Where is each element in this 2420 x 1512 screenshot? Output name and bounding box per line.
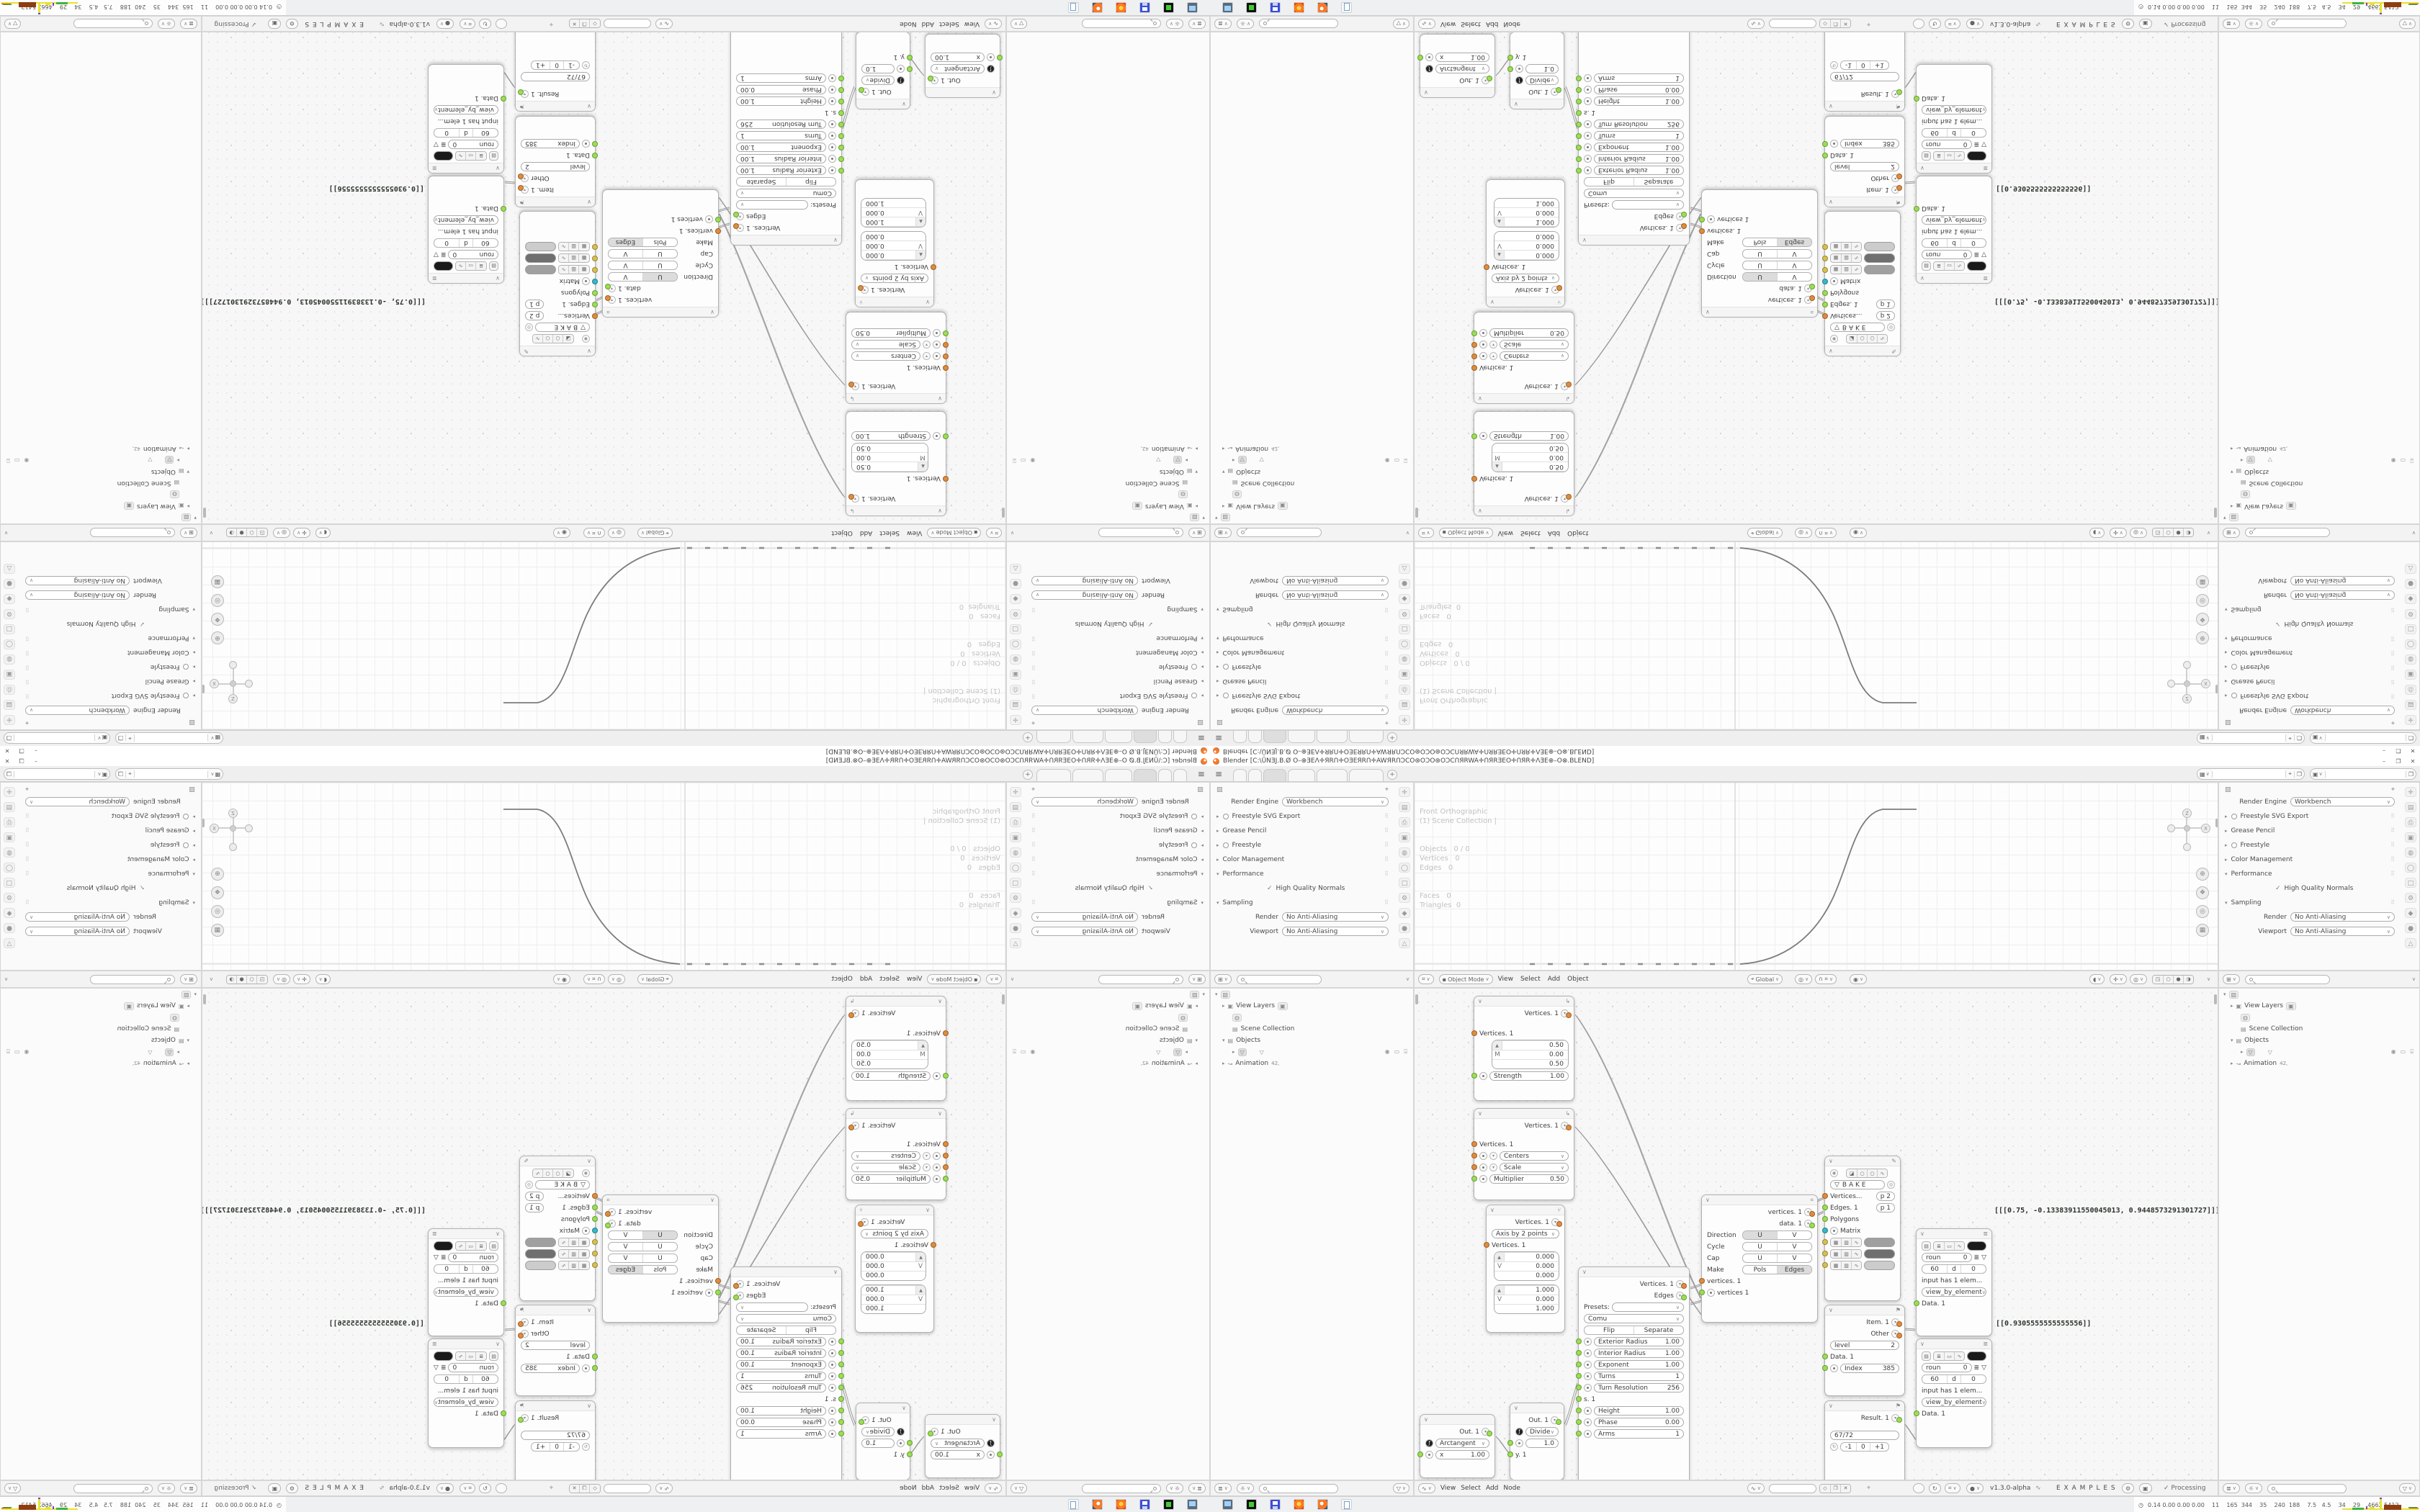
socket-toggle-icon[interactable] [1830, 277, 1838, 285]
direction-u-button[interactable]: U [1743, 1231, 1777, 1239]
collapse-icon[interactable]: ▾ [1216, 871, 1219, 877]
lines-icon[interactable]: ≣ [441, 251, 447, 258]
properties-context-icon[interactable]: ▧ [1216, 786, 1223, 793]
workspace-tab[interactable] [1233, 769, 1247, 781]
bake-tools-button[interactable]: ⚙ [2122, 1483, 2134, 1493]
socket-toggle-icon[interactable] [1479, 341, 1487, 348]
input-socket[interactable] [592, 1228, 598, 1233]
axis-gizmo[interactable]: Z X [2164, 657, 2214, 703]
solid-shading-icon[interactable]: ○ [2163, 976, 2173, 984]
object-menu[interactable]: Object [832, 976, 853, 983]
new-collection-button[interactable]: ☼∨ [1166, 19, 1183, 29]
refresh-button[interactable]: ↻ [479, 1483, 491, 1493]
vector-field[interactable]: ▲0.50 M0.00 0.50 [851, 443, 928, 472]
lines-icon[interactable]: ≣ [1974, 141, 1980, 148]
collapse-icon[interactable]: ▾ [2225, 607, 2228, 613]
window-titlebar[interactable]: Blender [C:\ŪNƎJ.B.Ø O–⊕ƎEΛ✛ЯRՈ✛OƎEЯRՈ✛A… [0, 746, 1210, 756]
scene-collection-item[interactable]: Scene Collection [117, 1025, 171, 1032]
monitor-icon[interactable]: ▤ [1922, 261, 1931, 271]
vcolor-icon[interactable]: ▦ [579, 1238, 589, 1246]
copy-icon[interactable]: ❐ [4, 735, 14, 742]
output-socket[interactable] [518, 174, 524, 179]
taskbar-app-icon-notepad[interactable] [1341, 2, 1352, 13]
output-socket[interactable] [1566, 494, 1572, 500]
tool-tab-icon[interactable]: ✛ [4, 715, 15, 725]
d-toggle[interactable]: d [460, 129, 473, 137]
hqn-checkbox[interactable]: ✓ [1267, 621, 1273, 628]
scene-tab-icon[interactable]: ◍ [1399, 654, 1410, 665]
node-menu[interactable]: Node [900, 20, 917, 27]
outliner-search-input[interactable] [1259, 19, 1338, 29]
region-collapse-handle[interactable] [202, 685, 205, 693]
axis-center-handle[interactable] [230, 825, 236, 832]
d-toggle[interactable]: d [1947, 239, 1960, 247]
hqn-checkbox[interactable]: ✓ [1267, 885, 1273, 892]
collapse-icon[interactable]: ▾ [1201, 900, 1204, 906]
centers-dropdown[interactable]: Centers∨ [851, 351, 920, 361]
collapse-icon[interactable]: ▾ [194, 991, 197, 997]
input-socket[interactable] [1484, 1242, 1489, 1248]
turn-resolution-slider[interactable]: Turn Resolution256 [1594, 120, 1684, 129]
viewport-aa-dropdown[interactable]: No Anti-Aliasing∨ [1282, 927, 1389, 936]
direction-u-button[interactable]: U [643, 273, 677, 281]
copy-icon[interactable]: ❐ [2406, 735, 2416, 742]
value-input[interactable]: 1.0 [1525, 1439, 1559, 1448]
output-socket[interactable] [1896, 1321, 1902, 1327]
socket-toggle-icon[interactable] [705, 1289, 713, 1297]
scale-dropdown[interactable]: Scale∨ [851, 1163, 920, 1172]
copy-icon[interactable]: ❐ [2406, 771, 2416, 778]
separate-button[interactable]: Separate [737, 178, 786, 186]
gizmo-toggle-button[interactable]: ◖∨ [315, 528, 331, 538]
view-layer-selector[interactable]: ▣∨ ❐ [2310, 732, 2416, 744]
ecolor-icon[interactable]: ▥ [569, 254, 579, 262]
collapse-icon[interactable]: ▾ [2223, 991, 2226, 997]
monitor-icon[interactable]: ▤ [1922, 1351, 1931, 1361]
properties-context-icon[interactable]: ▧ [1216, 719, 1223, 726]
socket-toggle-icon[interactable] [828, 143, 836, 151]
socket-toggle-icon[interactable] [1584, 143, 1592, 151]
rounding-field[interactable]: roun0 [1922, 1363, 1972, 1372]
input-socket[interactable] [1576, 1431, 1582, 1436]
collapse-icon[interactable]: ∨ [1490, 1207, 1494, 1213]
view-mode-dropdown[interactable]: view_by_element∨ [1922, 215, 1986, 225]
add-workspace-button[interactable]: + [1023, 770, 1033, 780]
data-tab-icon[interactable]: △ [1010, 938, 1021, 948]
outliner-search-input[interactable] [1259, 1484, 1338, 1493]
physics-tab-icon[interactable]: ◆ [1010, 908, 1021, 918]
input-socket[interactable] [592, 290, 598, 296]
node-counter[interactable]: ∨⚑ Result. 1▾ 67/72 ↻ -10+1 [1824, 1400, 1905, 1480]
show-eye-icon[interactable]: ◉ [582, 1169, 590, 1177]
fcolor-icon[interactable]: ▦ [1831, 243, 1841, 251]
collapse-icon[interactable]: ∨ [992, 89, 996, 96]
input-socket[interactable] [1699, 1290, 1705, 1295]
collapse-icon[interactable]: ▾ [1222, 1038, 1225, 1043]
mesh-object-icon[interactable]: ▽ [1238, 456, 1247, 464]
add-workspace-button[interactable]: + [1387, 770, 1397, 780]
frame-icon[interactable]: ▭ [1944, 152, 1954, 160]
collapse-icon[interactable]: ▾ [1216, 607, 1219, 613]
expand-icon[interactable]: ▸ [192, 693, 195, 699]
node-move[interactable]: ∨↳ Vertices. 1▾ Vertices. 1 ▲0.50 M0.00 … [1474, 411, 1574, 516]
cap-v-button[interactable]: V [609, 250, 643, 258]
ecolor-icon[interactable]: ▥ [1841, 1250, 1851, 1258]
cycle-v-button[interactable]: V [609, 261, 643, 269]
socket-toggle-icon[interactable] [1425, 53, 1433, 61]
d-toggle[interactable]: d [1947, 1375, 1960, 1383]
axis-z-handle[interactable]: Z [228, 694, 238, 703]
taskbar-app-icon-firefox[interactable] [1116, 2, 1126, 13]
viewlayer-tab-icon[interactable]: ▣ [1399, 670, 1410, 680]
view-mode-dropdown[interactable]: view_by_element∨ [434, 1398, 498, 1407]
snap-magnet-button[interactable]: ∩ ⌗∨ [1815, 528, 1837, 538]
edge-display-icon[interactable]: ○ [1857, 335, 1867, 343]
expand-icon[interactable]: ▸ [2225, 650, 2228, 656]
add-menu[interactable]: Add [1548, 976, 1560, 983]
turns-slider[interactable]: Turns1 [736, 1372, 826, 1381]
filter-button[interactable]: ▽∨ [1393, 19, 1410, 29]
render-tab-icon[interactable]: ▤ [4, 700, 15, 710]
collapse-icon[interactable]: ∨ [902, 1405, 906, 1411]
hide-eye-icon[interactable]: ◉ [1030, 456, 1035, 464]
physics-tab-icon[interactable]: ◆ [2405, 594, 2416, 604]
collapse-icon[interactable]: ▾ [194, 515, 197, 521]
select-menu[interactable]: Select [939, 20, 959, 27]
edge-color-swatch[interactable] [525, 253, 556, 263]
data-tab-icon[interactable]: △ [1399, 938, 1410, 948]
expand-icon[interactable]: ▸ [1222, 503, 1225, 509]
world-globe-icon[interactable]: ◍ [2241, 1014, 2250, 1022]
world-globe-icon[interactable]: ◍ [170, 491, 179, 499]
frame-icon[interactable]: ▭ [466, 152, 476, 160]
render-aa-dropdown[interactable]: No Anti-Aliasing∨ [1031, 912, 1138, 922]
collapse-icon[interactable]: ∨ [1920, 275, 1924, 282]
make-edges-button[interactable]: Edges [1777, 238, 1811, 246]
width-field[interactable]: 60 [1922, 1375, 1947, 1383]
centers-dropdown[interactable]: Centers∨ [851, 1151, 920, 1161]
input-socket[interactable] [943, 1176, 949, 1182]
fake-user-shield-icon[interactable]: ◇ [590, 20, 600, 28]
render-aa-dropdown[interactable]: No Anti-Aliasing∨ [1282, 590, 1389, 600]
monitor-icon[interactable]: ▤ [489, 261, 498, 271]
socket-toggle-icon[interactable] [1830, 1227, 1838, 1235]
lines-icon[interactable]: ≣ [476, 152, 486, 160]
taskbar-app-icon-blender[interactable] [1092, 2, 1103, 13]
view-menu[interactable]: View [1440, 1485, 1456, 1492]
node-stethoscope-1[interactable]: ∨≣ ▤ ≣▭∿ roun0 ≣▽ 60d0 input has 1 elem.… [1916, 176, 1992, 284]
tree-type-button[interactable]: ∿∨ [655, 1483, 673, 1493]
snap-target-button[interactable]: ◎∨ [608, 974, 625, 984]
direction-u-button[interactable]: U [1743, 273, 1777, 281]
snap-target-button[interactable]: ◎∨ [1795, 528, 1812, 538]
workspace-tab[interactable] [1105, 731, 1132, 743]
input-socket[interactable] [838, 1338, 844, 1344]
depth-field[interactable]: 0 [434, 1265, 460, 1273]
width-field[interactable]: 60 [1922, 129, 1947, 137]
output-tab-icon[interactable]: ⎙ [1010, 817, 1021, 827]
axis-center-handle[interactable] [2184, 680, 2190, 687]
separate-button[interactable]: Separate [1633, 178, 1683, 186]
expand-icon[interactable]: ▸ [1185, 457, 1188, 463]
editor-type-button[interactable]: ∿∨ [1418, 19, 1435, 29]
filter-button[interactable]: ▽∨ [4, 1483, 21, 1493]
view-layers-item[interactable]: View Layers [2244, 503, 2283, 510]
d-toggle[interactable]: d [1947, 1265, 1960, 1273]
object-tab-icon[interactable]: □ [2405, 878, 2416, 888]
collapse-icon[interactable]: ∨ [587, 103, 591, 109]
viewlayer-tab-icon[interactable]: ▣ [1010, 670, 1021, 680]
axis-minus-z-handle[interactable] [229, 843, 237, 851]
output-tab-icon[interactable]: ⎙ [1399, 685, 1410, 695]
node-stethoscope-2[interactable]: ∨≣ ▤ ≣▭∿ roun0 ≣▽ 60d0 input has 1 elem.… [428, 64, 504, 174]
rendered-shading-icon[interactable]: ◑ [2183, 529, 2193, 537]
snap-grid-button[interactable]: ⌗∨ [460, 19, 475, 29]
collapse-icon[interactable]: ∨ [496, 165, 500, 171]
depth-field[interactable]: 0 [1960, 1375, 1986, 1383]
minimize-button[interactable]: – [32, 748, 40, 755]
node-list-item[interactable]: ∨⚑ Item. 1▾ Other▾ level2 Data. 1 Index3… [515, 116, 596, 207]
outliner-search-input[interactable] [73, 19, 153, 29]
workspace-tab[interactable] [1158, 769, 1172, 781]
view-layer-selector[interactable]: ▣∨ ❐ [4, 768, 110, 780]
animation-item[interactable]: Animation [2244, 1060, 2277, 1067]
function-dropdown[interactable]: Arctangent∨ [1435, 64, 1489, 73]
world-tab-icon[interactable]: ◯ [4, 639, 15, 649]
input-socket[interactable] [1914, 1410, 1919, 1416]
mesh-object-icon[interactable]: ▽ [165, 1048, 174, 1056]
scene-icon[interactable]: ▦∨ [207, 771, 223, 778]
expand-icon[interactable]: ▸ [2231, 503, 2233, 509]
pin-icon[interactable]: ⌖ [126, 734, 135, 742]
curve-display-icon[interactable]: ∿ [1877, 1169, 1887, 1177]
socket-toggle-icon[interactable] [1479, 432, 1487, 440]
strength-slider[interactable]: Strength1.00 [851, 1071, 931, 1081]
tool-tab-icon[interactable]: ✛ [1010, 715, 1021, 725]
objects-item[interactable]: Objects [1236, 468, 1260, 475]
input-socket[interactable] [1576, 1408, 1582, 1413]
layout-button[interactable]: ▣ [2139, 1483, 2152, 1493]
input-socket[interactable] [1822, 1354, 1828, 1359]
vertex-color-swatch[interactable] [525, 265, 556, 274]
socket-toggle-icon[interactable] [987, 53, 995, 61]
frame-icon[interactable]: ▭ [466, 1352, 476, 1360]
axis-x-handle[interactable]: X [210, 824, 219, 833]
expand-icon[interactable]: ▸ [176, 457, 179, 463]
properties-search-input[interactable] [1237, 975, 1322, 984]
scene-tab-icon[interactable]: ◍ [2405, 847, 2416, 858]
input-socket[interactable] [838, 1350, 844, 1356]
outliner-search-input[interactable] [73, 1484, 153, 1493]
input-socket[interactable] [715, 1278, 721, 1284]
wave-icon[interactable]: ∿ [456, 152, 466, 160]
mesh-object-icon[interactable]: ▽ [1173, 1048, 1182, 1056]
taskbar-app-icon-floppy[interactable] [1270, 1499, 1281, 1510]
output-socket[interactable] [518, 1321, 524, 1327]
collapse-icon[interactable]: ∨ [938, 395, 942, 402]
constraints-tab-icon[interactable]: ● [2405, 923, 2416, 933]
mesh-object-icon[interactable]: ▽ [1238, 1048, 1247, 1056]
presets-dropdown[interactable]: ∨ [736, 1302, 808, 1312]
disable-viewport-icon[interactable]: ▭ [1021, 1048, 1026, 1056]
expand-icon[interactable]: ▸ [1232, 457, 1235, 463]
menu-icon[interactable]: ≡ [1215, 769, 1222, 779]
pan-hand-icon[interactable]: ❖ [2196, 613, 2209, 626]
node-divide[interactable]: ∨ Out. 1▾ ƒ Divide∨ 1.0 y. 1 [856, 1403, 910, 1480]
collapse-icon[interactable]: ▾ [1195, 1038, 1198, 1043]
object-menu[interactable]: Object [1567, 976, 1588, 983]
taskbar-app-icon-console[interactable] [1246, 1499, 1257, 1510]
solid-shading-icon[interactable]: ○ [247, 976, 257, 984]
increment-button[interactable]: +1 [532, 61, 550, 69]
copy-icon[interactable]: ❐ [1830, 20, 1840, 28]
input-socket[interactable] [907, 1440, 913, 1446]
close-button[interactable]: ✕ [2408, 748, 2417, 755]
filter-funnel-icon[interactable]: ▽ [1981, 141, 1986, 148]
wave-icon[interactable]: ∿ [1954, 1352, 1964, 1360]
flip-button[interactable]: Flip [1585, 1326, 1633, 1334]
increment-button[interactable]: +1 [532, 1443, 550, 1451]
expand-icon[interactable]: ▸ [187, 1061, 189, 1066]
disable-viewport-icon[interactable]: ▭ [1394, 456, 1400, 464]
tool-tab-icon[interactable]: ✛ [2405, 715, 2416, 725]
axis-mode-dropdown[interactable]: Axis by 2 points∨ [861, 274, 928, 283]
expand-icon[interactable]: ▸ [192, 679, 195, 685]
expand-icon[interactable]: ▸ [1216, 679, 1219, 685]
animation-item[interactable]: Animation [143, 1060, 176, 1067]
animation-item[interactable]: Animation [2244, 445, 2277, 452]
axis-center-handle[interactable] [230, 680, 236, 687]
proportional-edit-button[interactable]: ◉∨ [553, 528, 570, 538]
data-tab-icon[interactable]: △ [2405, 564, 2416, 574]
face-display-icon[interactable]: ○ [543, 335, 553, 343]
strength-slider[interactable]: Strength1.00 [1489, 431, 1569, 441]
modifier-funnel-icon[interactable]: ▽ [1156, 457, 1160, 464]
refresh-button[interactable]: ↻ [1929, 1483, 1941, 1493]
level-field[interactable]: level2 [521, 162, 590, 171]
function-dropdown[interactable]: Arctangent∨ [931, 64, 985, 73]
options-chevron[interactable]: ∨ [1010, 530, 1014, 536]
height-slider[interactable]: Height1.00 [1594, 1406, 1684, 1416]
input-socket[interactable] [943, 1141, 949, 1147]
collapse-icon[interactable]: ∨ [1478, 1110, 1482, 1117]
wave-icon[interactable]: ∿ [1954, 1242, 1964, 1250]
hqn-checkbox[interactable]: ✓ [1147, 885, 1153, 892]
fraction-field[interactable]: 67/72 [1830, 72, 1899, 81]
separate-button[interactable]: Separate [737, 1326, 786, 1334]
view-layers-item[interactable]: View Layers [1236, 1002, 1275, 1009]
vertex-display-icon[interactable]: ◪ [563, 1169, 573, 1177]
options-chevron[interactable]: ∨ [1406, 530, 1410, 536]
fake-user-shield-icon[interactable]: ◇ [590, 1485, 600, 1493]
input-socket[interactable] [715, 1290, 721, 1295]
render-engine-dropdown[interactable]: Workbench∨ [1282, 706, 1389, 715]
node-scale[interactable]: ∨↳ Vertices. 1▾ Vertices. 1 ▾ Centers∨ ▾… [1474, 1108, 1574, 1200]
expand-icon[interactable]: ▸ [1216, 814, 1219, 819]
tool-tab-icon[interactable]: ✛ [1399, 787, 1410, 797]
index-field[interactable]: Index385 [521, 1364, 580, 1373]
lines-icon[interactable]: ≣ [1974, 251, 1980, 258]
shading-mode-group[interactable]: ◳○ ●◑ [226, 975, 268, 984]
snap-circle-button[interactable] [1913, 1483, 1924, 1493]
axis-x-handle[interactable]: X [2201, 679, 2210, 688]
objects-item[interactable]: Objects [1236, 1037, 1260, 1044]
orientation-dropdown[interactable]: ⌖ Global∨ [637, 528, 673, 538]
mesh-object-icon[interactable]: ▽ [165, 456, 174, 464]
collapse-icon[interactable]: ∨ [833, 1269, 838, 1275]
expand-icon[interactable]: ▸ [1222, 446, 1225, 451]
window-titlebar[interactable]: Blender [C:\ŪNƎJ.B.Ø O–⊕ƎEΛ✛ЯRՈ✛OƎEЯRՈ✛A… [1210, 756, 2420, 766]
display-filter-button[interactable]: ≣∨ [1188, 19, 1206, 29]
view-layers-item[interactable]: View Layers [1145, 503, 1184, 510]
snap-circle-button[interactable] [1913, 19, 1924, 29]
properties-context-icon[interactable]: ▧ [189, 719, 195, 726]
object-tab-icon[interactable]: □ [1010, 624, 1021, 634]
collapse-icon[interactable]: ∨ [1829, 1158, 1833, 1164]
exterior-radius-slider[interactable]: Exterior Radius1.00 [736, 1337, 826, 1346]
bake-button[interactable]: ▽B A K E [535, 1180, 590, 1189]
cycle-u-button[interactable]: U [643, 261, 677, 269]
disable-render-icon[interactable]: ⌻ [1404, 1048, 1407, 1056]
vector-field[interactable]: ▲0.50 M0.00 0.50 [1492, 1040, 1569, 1069]
expand-icon[interactable]: ▸ [176, 1049, 179, 1055]
scene-collection-item[interactable]: Scene Collection [2249, 1025, 2303, 1032]
input-socket[interactable] [838, 168, 844, 174]
input-socket[interactable] [1576, 99, 1582, 104]
hide-eye-icon[interactable]: ◉ [1385, 1048, 1390, 1056]
make-pols-button[interactable]: Pols [1743, 238, 1777, 246]
depth-field[interactable]: 0 [1960, 129, 1986, 137]
input-socket[interactable] [931, 1242, 936, 1248]
properties-context-icon[interactable]: ▧ [189, 786, 195, 793]
height-slider[interactable]: Height1.00 [736, 1406, 826, 1416]
fcolor-icon[interactable]: ▦ [579, 243, 589, 251]
input-socket[interactable] [1699, 228, 1705, 234]
view-menu[interactable]: View [1440, 20, 1456, 27]
socket-toggle-icon[interactable] [828, 1430, 836, 1438]
exponent-slider[interactable]: Exponent1.00 [1594, 1360, 1684, 1369]
layout-button[interactable]: ▣ [268, 1483, 281, 1493]
input-socket[interactable] [1822, 1262, 1828, 1268]
input-socket[interactable] [1471, 365, 1477, 371]
tool-tab-icon[interactable]: ✛ [1010, 787, 1021, 797]
text-color-swatch[interactable] [1967, 151, 1986, 161]
properties-context-icon[interactable]: ▧ [1197, 786, 1204, 793]
collapse-icon[interactable]: ∨ [1478, 395, 1482, 402]
filter-button[interactable]: ▽∨ [1393, 1483, 1410, 1493]
output-socket[interactable] [1809, 284, 1815, 289]
grid-ortho-icon[interactable]: ▦ [211, 924, 224, 937]
view-layer-icon[interactable]: ▣∨ [94, 735, 109, 742]
input-socket[interactable] [592, 267, 598, 273]
world-globe-icon[interactable]: ◍ [1178, 1014, 1188, 1022]
minimize-button[interactable]: – [32, 758, 40, 765]
cycle-u-button[interactable]: U [643, 1243, 677, 1251]
phase-slider[interactable]: Phase0.00 [1594, 85, 1684, 94]
node-stethoscope-2[interactable]: ∨≣ ▤ ≣▭∿ roun0 ≣▽ 60d0 input has 1 elem.… [1916, 1338, 1992, 1448]
width-field[interactable]: 60 [1922, 1265, 1947, 1273]
collapse-icon[interactable]: ∨ [938, 508, 942, 514]
vcolor-icon[interactable]: ∿ [1851, 266, 1861, 274]
input-socket[interactable] [1576, 168, 1582, 174]
material-shading-icon[interactable]: ● [237, 976, 247, 984]
value-input[interactable]: 1.0 [861, 64, 895, 73]
node-stethoscope-2[interactable]: ∨≣ ▤ ≣▭∿ roun0 ≣▽ 60d0 input has 1 elem.… [1916, 64, 1992, 174]
view-layer-name-field[interactable] [14, 769, 94, 779]
input-socket[interactable] [1822, 1216, 1828, 1222]
flip-button[interactable]: Flip [786, 178, 835, 186]
function-dropdown[interactable]: Arctangent∨ [1435, 1439, 1489, 1448]
